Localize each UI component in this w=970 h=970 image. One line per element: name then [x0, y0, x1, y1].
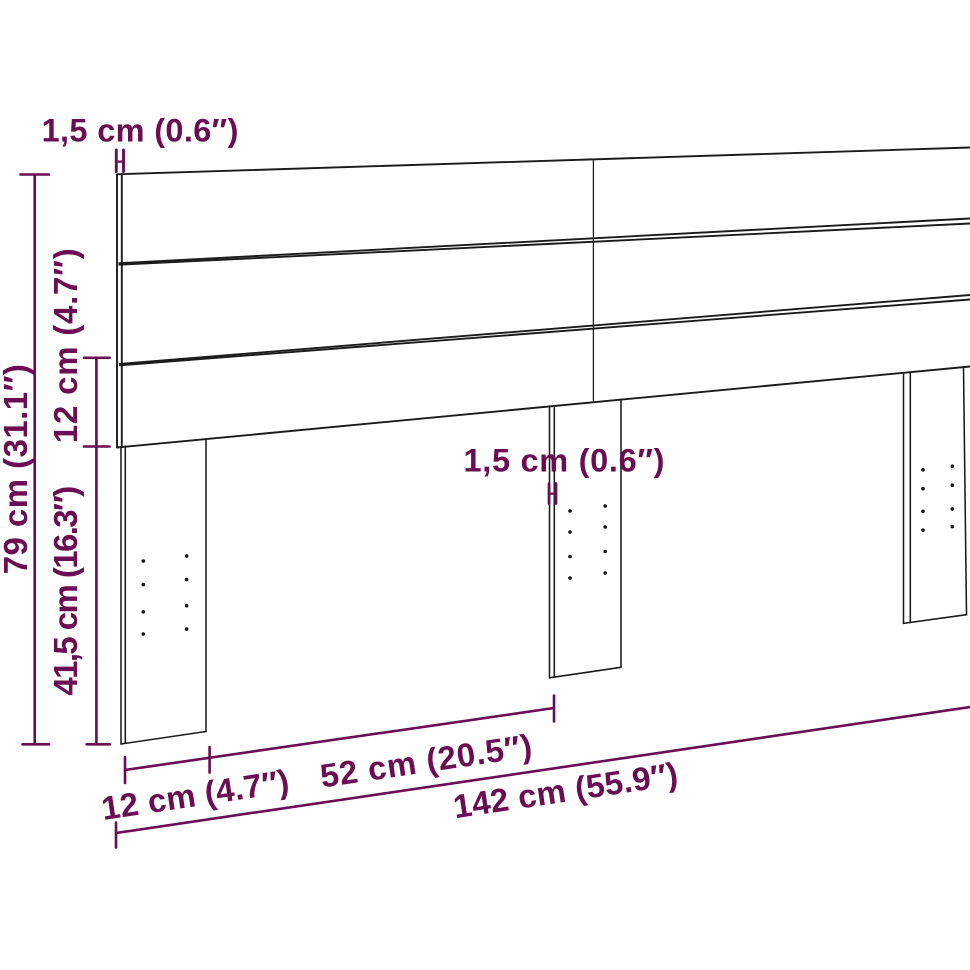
svg-text:12 cm (4.7″): 12 cm (4.7″): [99, 762, 292, 827]
svg-text:79 cm (31.1″): 79 cm (31.1″): [0, 364, 34, 575]
svg-text:41,5 cm (16.3″): 41,5 cm (16.3″): [47, 487, 84, 696]
svg-text:12 cm (4.7″): 12 cm (4.7″): [47, 248, 84, 444]
svg-text:1,5 cm (0.6″): 1,5 cm (0.6″): [464, 443, 666, 479]
svg-text:1,5 cm (0.6″): 1,5 cm (0.6″): [42, 113, 239, 149]
